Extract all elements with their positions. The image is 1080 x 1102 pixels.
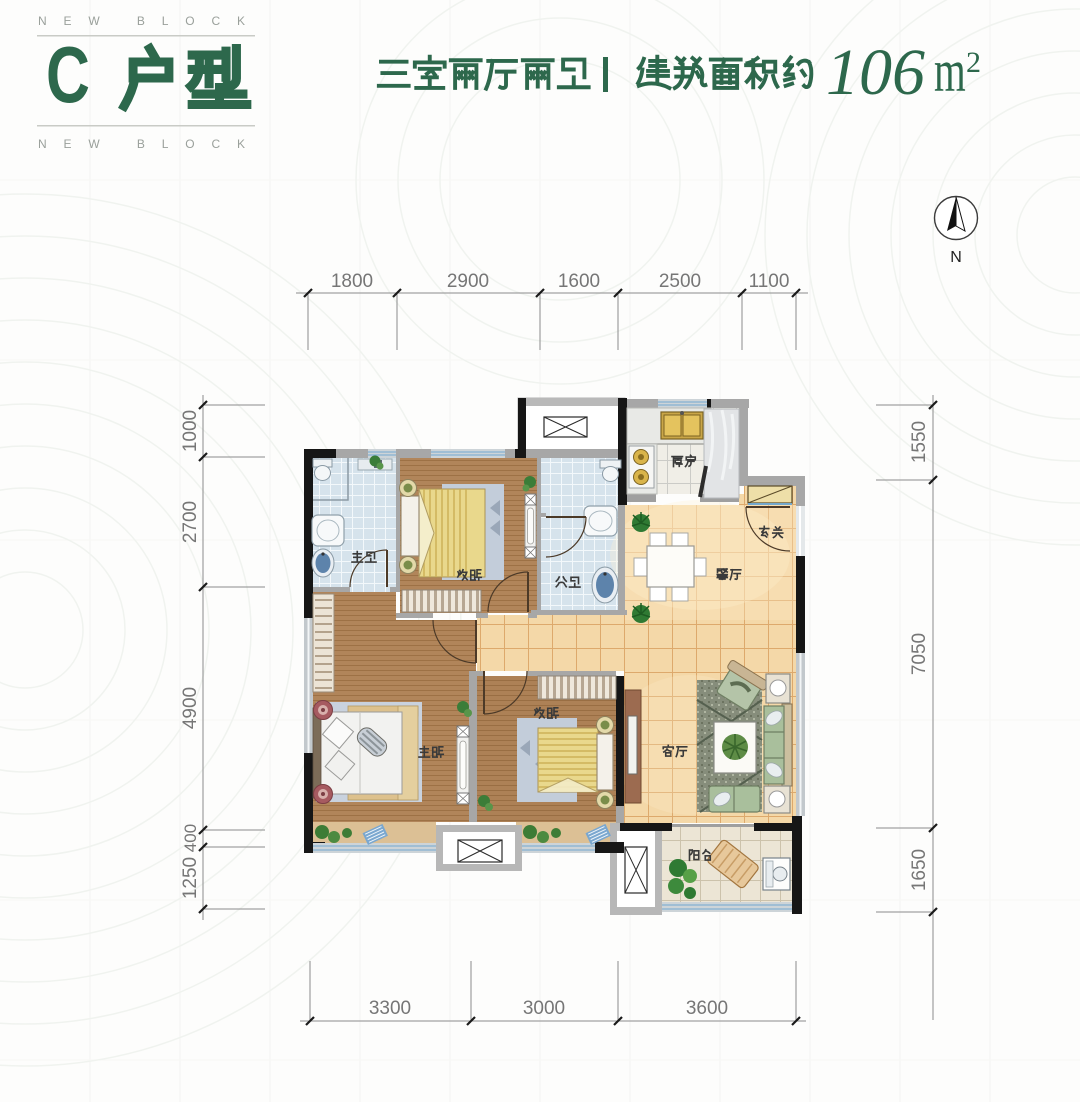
svg-text:1800: 1800 — [331, 271, 373, 292]
svg-text:1250: 1250 — [180, 857, 201, 899]
svg-text:2700: 2700 — [180, 501, 201, 543]
svg-text:1000: 1000 — [180, 410, 201, 452]
svg-text:4900: 4900 — [180, 687, 201, 729]
svg-text:106: 106 — [826, 36, 925, 109]
svg-text:1100: 1100 — [749, 271, 790, 292]
svg-text:3300: 3300 — [369, 998, 411, 1019]
svg-text:2500: 2500 — [659, 271, 701, 292]
svg-text:1550: 1550 — [909, 421, 930, 463]
svg-text:3000: 3000 — [523, 998, 565, 1019]
svg-text:7050: 7050 — [909, 633, 930, 675]
svg-text:400: 400 — [181, 824, 200, 852]
svg-text:3600: 3600 — [686, 998, 728, 1019]
svg-text:N: N — [950, 249, 962, 266]
svg-text:2: 2 — [966, 46, 981, 79]
svg-text:NEW BLOCK: NEW BLOCK — [38, 137, 255, 151]
svg-text:m: m — [934, 38, 966, 105]
svg-text:NEW BLOCK: NEW BLOCK — [38, 14, 255, 28]
svg-text:1650: 1650 — [909, 849, 930, 891]
svg-text:2900: 2900 — [447, 271, 489, 292]
svg-text:C: C — [46, 31, 90, 120]
svg-text:1600: 1600 — [558, 271, 600, 292]
